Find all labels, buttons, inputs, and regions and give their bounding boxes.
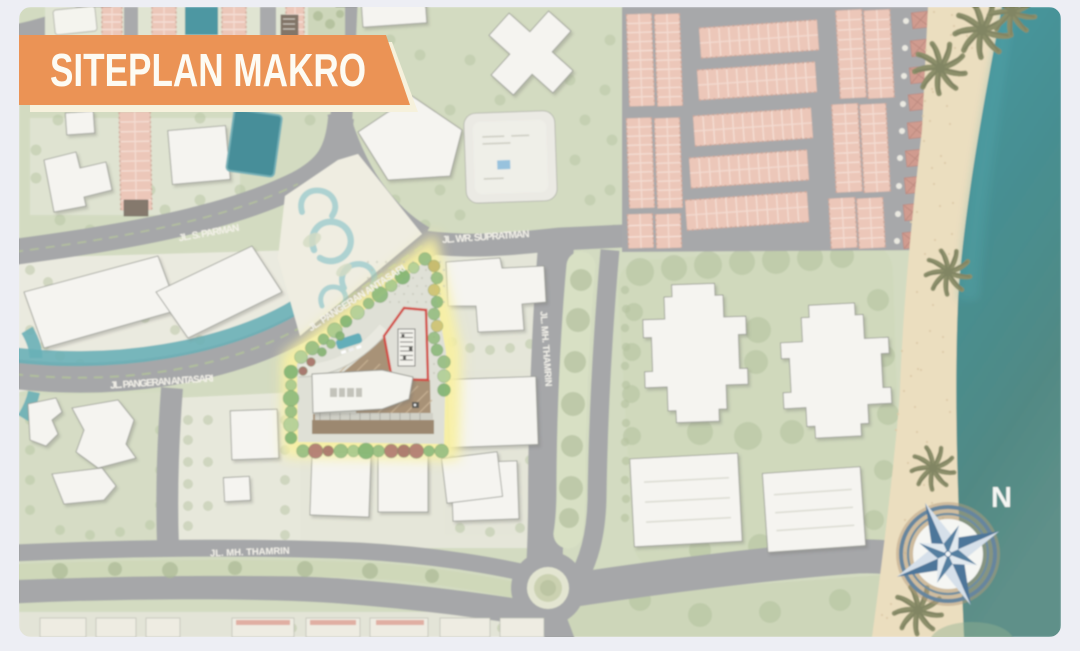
svg-text:SITEPLAN MAKRO: SITEPLAN MAKRO — [50, 44, 366, 96]
